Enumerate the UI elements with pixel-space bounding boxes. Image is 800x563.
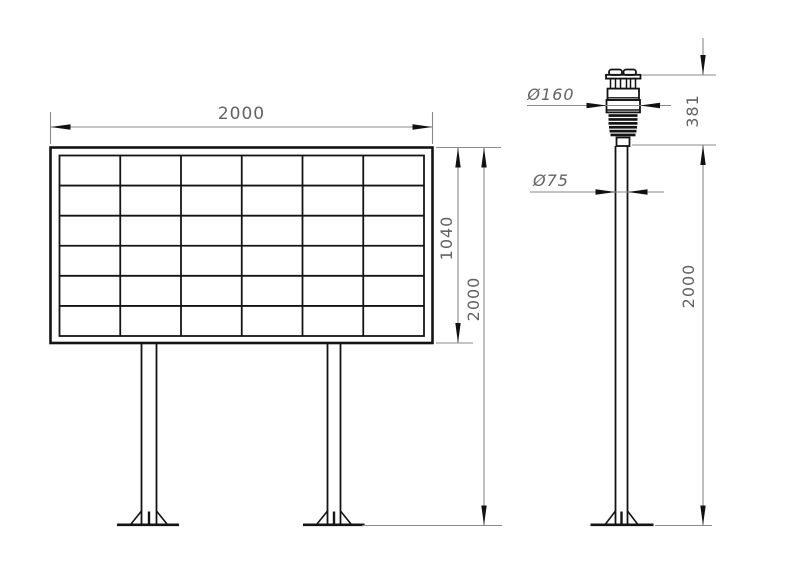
arrowhead: [640, 103, 660, 108]
shield-rib: [609, 126, 637, 129]
gusset: [131, 511, 142, 524]
gusset: [341, 511, 352, 524]
dim-sensor-diameter-label: Ø160: [526, 85, 574, 104]
shield-rib: [611, 134, 636, 137]
sensor-post: [621, 79, 627, 89]
sensor-post: [631, 79, 636, 89]
dim-board-overall-height-label: 2000: [464, 277, 483, 322]
mounting-pole: [616, 146, 628, 524]
dim-sensor-height-label: 381: [683, 94, 702, 128]
sensor-post: [611, 79, 616, 89]
dim-pole-height-label: 2000: [679, 264, 698, 309]
dim-board-width-label: 2000: [218, 104, 265, 124]
gusset: [606, 511, 616, 524]
sensor-radiation-shield: [609, 114, 638, 136]
board-cell-grid: [60, 156, 425, 337]
technical-drawing: 2000 1040 2000: [0, 0, 800, 563]
dim-pole-diameter-label: Ø75: [532, 171, 569, 190]
arrowhead: [455, 323, 460, 343]
arrowhead: [481, 148, 486, 168]
shield-rib: [609, 118, 638, 121]
shield-rib: [609, 114, 638, 117]
dim-sensor-diameter: Ø160: [526, 85, 671, 108]
display-board-view: 2000 1040 2000: [51, 104, 503, 526]
dim-pole-height: 2000: [655, 145, 712, 526]
arrowhead: [596, 189, 616, 194]
gusset: [157, 511, 168, 524]
pole-base-plate: [591, 511, 654, 525]
gusset: [628, 511, 638, 524]
sensor-neck: [617, 138, 630, 147]
arrowhead: [700, 145, 705, 165]
shield-rib: [609, 122, 638, 125]
gusset: [317, 511, 328, 524]
arrowhead: [628, 189, 648, 194]
arrowhead: [587, 103, 607, 108]
dim-pole-diameter: Ø75: [530, 171, 664, 195]
arrowhead: [700, 506, 705, 526]
dim-panel-height-label: 1040: [437, 216, 456, 261]
dim-sensor-height: 381: [632, 38, 716, 145]
board-legs: [142, 343, 341, 524]
shield-rib: [610, 130, 637, 133]
arrowhead: [700, 55, 705, 75]
arrowhead: [51, 124, 71, 129]
sensor-pole-view: Ø160 381 Ø75 2000: [526, 38, 716, 526]
arrowhead: [455, 148, 460, 168]
dim-board-width: 2000: [51, 104, 433, 144]
arrowhead: [481, 506, 486, 526]
weather-sensor: [606, 70, 641, 147]
arrowhead: [413, 124, 433, 129]
